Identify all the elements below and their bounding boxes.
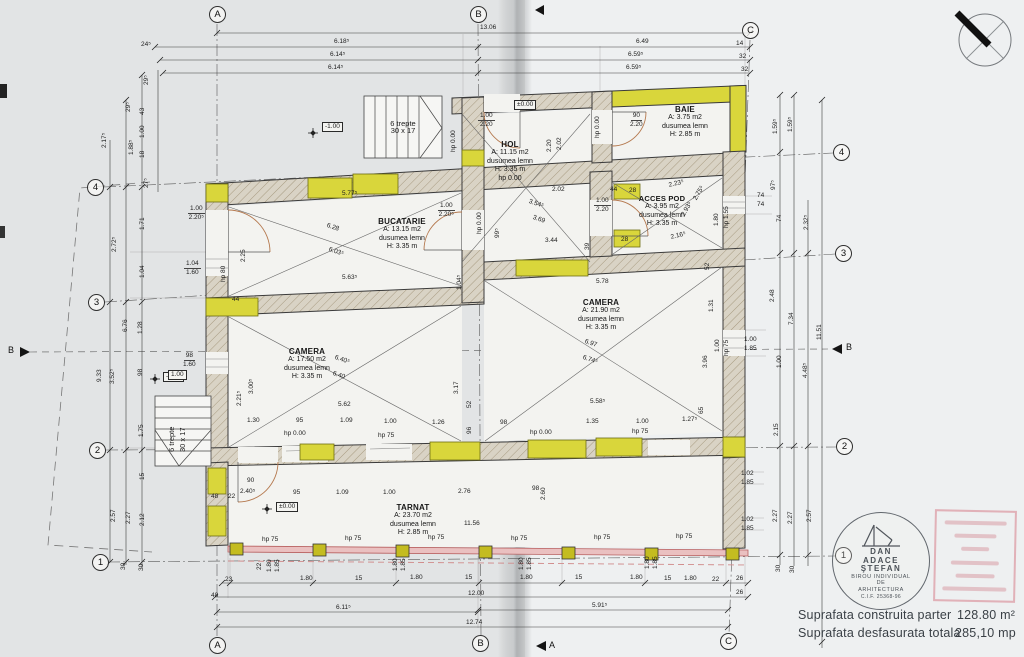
dim-label: 1.35 bbox=[586, 418, 599, 425]
dim-label: 1.00 bbox=[383, 489, 396, 496]
dim-label: 43 bbox=[139, 108, 146, 115]
dim-label: 3.44 bbox=[545, 237, 558, 244]
door-size-label: 1.002.20⁵ bbox=[438, 202, 455, 218]
dim-label: 90 bbox=[247, 477, 254, 484]
dim-label: 5.91⁵ bbox=[592, 602, 607, 609]
dim-label: 1.30 bbox=[247, 417, 260, 424]
dim-label: hp 75 bbox=[723, 340, 730, 356]
dim-label: 6.59⁵ bbox=[628, 51, 643, 58]
dim-label: 1.85 bbox=[741, 525, 754, 532]
dim-label: 15 bbox=[139, 473, 146, 480]
dim-label: 95 bbox=[296, 417, 303, 424]
dim-label: 6.11⁵ bbox=[336, 604, 351, 611]
dim-label: 1.00 bbox=[636, 418, 649, 425]
grid-bubble-4-right: 4 bbox=[833, 144, 850, 161]
room-label-camera-2: CAMERA A: 21.90 m2 dusumea lemn H: 3.35 … bbox=[556, 298, 646, 333]
dim-label: 1.28 bbox=[137, 321, 144, 334]
dim-label: 22 bbox=[228, 493, 235, 500]
dim-label: 15 bbox=[465, 574, 472, 581]
dim-label: 6.74⁵ bbox=[582, 354, 599, 366]
dim-label: 23 bbox=[225, 576, 232, 583]
dim-label: 30 bbox=[775, 565, 782, 572]
dim-label: hp 0.00 bbox=[450, 130, 457, 152]
dim-label: 1.80 bbox=[644, 556, 651, 569]
dim-label: 15 bbox=[355, 575, 362, 582]
dim-label: 1.31 bbox=[708, 299, 715, 312]
dim-label: hp 75 bbox=[511, 535, 527, 542]
dim-label: 1.80 bbox=[266, 559, 273, 572]
dim-label: 1.85 bbox=[526, 557, 533, 570]
dim-label: 48 bbox=[211, 493, 218, 500]
dim-label: 5.63⁵ bbox=[342, 274, 357, 281]
room-label-bucatarie: BUCATARIE A: 13.15 m2 dusumea lemn H: 3.… bbox=[352, 217, 452, 252]
dim-label: 29⁵ bbox=[125, 102, 132, 112]
dim-label: 48 bbox=[211, 592, 218, 599]
dim-label: 1.00 bbox=[384, 418, 397, 425]
dim-label: 1.88⁵ bbox=[128, 140, 135, 155]
dim-label: 11.56 bbox=[464, 520, 480, 527]
dim-label: 1.85 bbox=[741, 479, 754, 486]
dim-label: 6.49 bbox=[636, 38, 649, 45]
dim-label: 22 bbox=[256, 563, 263, 570]
dim-label: 99⁵ bbox=[494, 228, 501, 238]
dim-label: 98 bbox=[532, 485, 539, 492]
dim-label: hp 75 bbox=[345, 535, 361, 542]
dim-label: 97⁵ bbox=[770, 180, 777, 190]
dim-label: 24⁵ bbox=[141, 41, 151, 48]
dim-label: 1.00 bbox=[139, 125, 146, 138]
grid-bubble-b-bottom: B bbox=[472, 635, 489, 652]
dim-label: hp 75 bbox=[676, 533, 692, 540]
dim-label: 3.52⁵ bbox=[109, 369, 116, 384]
grid-bubble-a-top: A bbox=[209, 6, 226, 23]
stamp-org-line: ARHITECTURA bbox=[858, 587, 904, 594]
dim-label: hp 0.00 bbox=[284, 430, 306, 437]
dim-label: 26 bbox=[736, 589, 743, 596]
dim-label: 65 bbox=[698, 407, 705, 414]
dim-label: 6.03⁵ bbox=[328, 246, 345, 258]
dim-label: 2.57 bbox=[806, 509, 813, 522]
dim-label: 2.76 bbox=[458, 488, 471, 495]
dim-label: 3.17 bbox=[453, 381, 460, 394]
dim-label: 39 bbox=[584, 243, 591, 250]
dim-label: 2.20 bbox=[546, 139, 553, 152]
dim-label: 1.85 bbox=[652, 556, 659, 569]
dim-label: 18 bbox=[139, 151, 146, 158]
scanned-floor-plan-sheet: A B C A B C 4 3 2 1 4 3 2 1 B B A 13.06 … bbox=[0, 0, 1024, 657]
dim-label: 96 bbox=[466, 427, 473, 434]
grid-bubble-c-bottom: C bbox=[720, 633, 737, 650]
dim-label: 2.17⁵ bbox=[101, 133, 108, 148]
dim-label: hp 0.00 bbox=[476, 212, 483, 234]
dim-label: 44 bbox=[232, 296, 239, 303]
grid-bubble-2-left: 2 bbox=[89, 442, 106, 459]
level-marker: -1.00 bbox=[322, 122, 343, 132]
section-label-a-bottom: A bbox=[549, 640, 555, 650]
dim-label: 1.09 bbox=[340, 417, 353, 424]
dim-label: 74 bbox=[757, 192, 764, 199]
section-label-b-left: B bbox=[8, 345, 14, 355]
dim-label: 12.74 bbox=[466, 619, 482, 626]
dim-label: 1.04 bbox=[139, 265, 146, 278]
dim-label: 2.72⁵ bbox=[111, 237, 118, 252]
dim-label: hp 75 bbox=[428, 534, 444, 541]
dim-label: 2.48 bbox=[769, 289, 776, 302]
dim-label: 7.34 bbox=[788, 312, 795, 325]
dim-label: 6.18⁵ bbox=[334, 38, 349, 45]
dim-label: hp 75 bbox=[262, 536, 278, 543]
dim-label: 30 bbox=[789, 566, 796, 573]
door-size-label: 1.002.20 bbox=[478, 112, 495, 128]
dim-label: 5.58⁵ bbox=[590, 398, 605, 405]
dim-label: hp 1.55 bbox=[723, 206, 730, 228]
summary-total-area-value: 285,10 mp bbox=[955, 626, 1016, 640]
dim-label: 1.80 bbox=[300, 575, 313, 582]
window-size-label: 1.041.60 bbox=[184, 260, 201, 276]
dim-label: 2.27 bbox=[787, 511, 794, 524]
dim-label: hp 75 bbox=[594, 534, 610, 541]
dim-label: 6.59⁵ bbox=[626, 64, 641, 71]
grid-bubble-3-right: 3 bbox=[835, 245, 852, 262]
dim-label: 26 bbox=[736, 575, 743, 582]
dim-label: 2.02 bbox=[552, 186, 565, 193]
dim-label: 2.02 bbox=[556, 137, 563, 150]
dim-label: 28 bbox=[629, 187, 636, 194]
dim-label: 1.27⁵ bbox=[682, 416, 697, 423]
dim-label: 1.00 bbox=[744, 336, 757, 343]
grid-bubble-c-top: C bbox=[742, 22, 759, 39]
dim-label: 14 bbox=[736, 40, 743, 47]
dim-label: 2.12 bbox=[139, 513, 146, 526]
stairs-label: 6 trepte bbox=[168, 427, 175, 452]
stamp-cif-line: C.I.F. 25368-96 bbox=[861, 594, 901, 600]
grid-bubble-1-left: 1 bbox=[92, 554, 109, 571]
section-label-b-right: B bbox=[846, 342, 852, 352]
dim-label: 1.59⁵ bbox=[772, 119, 779, 134]
dim-label: 1.80 bbox=[630, 574, 643, 581]
dim-label: 1.26 bbox=[432, 419, 445, 426]
dim-label: 2.16⁵ bbox=[670, 231, 687, 241]
dim-label: 3.00⁵ bbox=[248, 379, 255, 394]
dim-label: 1.80 bbox=[518, 557, 525, 570]
dim-label: 1.80 bbox=[392, 558, 399, 571]
door-size-label: 902.20 bbox=[630, 112, 643, 128]
dim-label: 1.80 bbox=[520, 574, 533, 581]
dim-label: 2.57 bbox=[110, 509, 117, 522]
dim-label: 1.00 bbox=[168, 370, 187, 380]
dim-label: 4.48⁵ bbox=[802, 363, 809, 378]
dim-label: 1.75 bbox=[138, 424, 145, 437]
dim-label: 27⁵ bbox=[143, 178, 150, 188]
dim-label: 6.97 bbox=[584, 338, 598, 349]
dim-label: 1.85 bbox=[274, 559, 281, 572]
dim-label: 2.32⁵ bbox=[803, 215, 810, 230]
dim-label: 1.80 bbox=[684, 575, 697, 582]
dim-label: 1.80 bbox=[713, 213, 720, 226]
dim-label: 74 bbox=[757, 201, 764, 208]
drafting-table-icon bbox=[858, 522, 904, 548]
dim-label: 11.51 bbox=[816, 324, 823, 340]
dim-label: 1.85 bbox=[400, 558, 407, 571]
summary-built-area-label: Suprafata construita parter bbox=[798, 608, 951, 622]
room-label-tarnat: TARNAT A: 23.70 m2 dusumea lemn H: 2.85 … bbox=[368, 503, 458, 538]
room-label-hol: HOL A: 11.15 m2 dusumea lemn H: 3.35 m h… bbox=[470, 140, 550, 183]
dim-label: 32 bbox=[739, 53, 746, 60]
dim-label: 1.85 bbox=[744, 345, 757, 352]
architect-round-stamp: DAN ADACE ŞTEFAN BIROU INDIVIDUAL DE ARH… bbox=[832, 512, 930, 610]
dim-label: 95 bbox=[293, 489, 300, 496]
dim-label: 2.15 bbox=[773, 423, 780, 436]
summary-built-area-value: 128.80 m² bbox=[957, 608, 1015, 622]
window-size-label: 981.60 bbox=[183, 352, 196, 368]
room-label-acces-pod: ACCES POD A: 3.95 m2 dusumea lemn H: 3.3… bbox=[618, 194, 706, 229]
dim-label: 74 bbox=[776, 215, 783, 222]
dim-label: 1.02 bbox=[741, 470, 754, 477]
grid-bubble-4-left: 4 bbox=[87, 179, 104, 196]
dim-label: 3.96 bbox=[702, 355, 709, 368]
room-label-baie: BAIE A: 3.75 m2 dusumea lemn H: 2.85 m bbox=[640, 105, 730, 140]
dim-label: 1.59⁵ bbox=[787, 117, 794, 132]
dim-label: 5.62 bbox=[338, 401, 351, 408]
dim-label: 15 bbox=[664, 575, 671, 582]
dim-label: 6.14⁵ bbox=[330, 51, 345, 58]
grid-bubble-3-left: 3 bbox=[88, 294, 105, 311]
level-marker: ±0.00 bbox=[514, 100, 536, 110]
dim-label: 6.76 bbox=[122, 319, 129, 332]
dim-label: 29⁵ bbox=[143, 75, 150, 85]
dim-label: 52 bbox=[466, 401, 473, 408]
dim-label: 5.78 bbox=[596, 278, 609, 285]
dim-label: 1.04⁵ bbox=[456, 275, 463, 290]
summary-total-area-label: Suprafata desfasurata totala bbox=[798, 626, 961, 640]
dim-label: 28 bbox=[621, 236, 628, 243]
dim-label: hp 75 bbox=[632, 428, 648, 435]
dim-label: 1.09 bbox=[336, 489, 349, 496]
stairs-label: 6 trepte 30 x 17 bbox=[364, 120, 442, 134]
dim-label: 22 bbox=[712, 576, 719, 583]
dim-label: 2.40⁵ bbox=[240, 488, 255, 495]
grid-bubble-2-right: 2 bbox=[836, 438, 853, 455]
dim-label: 6.28 bbox=[326, 222, 340, 233]
dim-label: 2.27 bbox=[125, 511, 132, 524]
dim-label: 52 bbox=[704, 263, 711, 270]
dim-label: 1.00 bbox=[776, 355, 783, 368]
dim-label: 30 bbox=[138, 564, 145, 571]
dim-label: 44 bbox=[610, 186, 617, 193]
dim-label: 9.33 bbox=[96, 369, 103, 382]
dim-label: 1.00 bbox=[714, 339, 721, 352]
dim-label: 1.71 bbox=[139, 217, 146, 230]
dim-label: 30 bbox=[120, 563, 127, 570]
door-size-label: 1.002.20 bbox=[594, 197, 611, 213]
dim-label: 6.14⁵ bbox=[328, 64, 343, 71]
grid-bubble-a-bottom: A bbox=[209, 637, 226, 654]
dim-label: 1.80 bbox=[410, 574, 423, 581]
dim-label: 1.02 bbox=[741, 516, 754, 523]
dim-label: hp 80 bbox=[220, 266, 227, 282]
stamp-name-line: ŞTEFAN bbox=[861, 565, 902, 574]
dim-label: hp 0.00 bbox=[530, 429, 552, 436]
dim-label: 98 bbox=[137, 369, 144, 376]
dim-label: 2.27 bbox=[772, 509, 779, 522]
dim-label: 32 bbox=[741, 66, 748, 73]
door-size-label: 1.002.20⁵ bbox=[188, 205, 205, 221]
dim-label: hp 75 bbox=[378, 432, 394, 439]
level-marker: ±0.00 bbox=[276, 502, 298, 512]
dim-label: 13.06 bbox=[480, 24, 496, 31]
dim-label: 98 bbox=[500, 419, 507, 426]
dim-label: 15 bbox=[575, 574, 582, 581]
dim-label: 3.54⁵ bbox=[528, 198, 545, 210]
dim-label: 2.23⁵ bbox=[668, 179, 685, 189]
dim-label: 2.21⁵ bbox=[236, 391, 243, 406]
approval-stamp bbox=[933, 509, 1017, 603]
dim-label: 2.25 bbox=[240, 249, 247, 262]
stairs-label: 30 x 17 bbox=[179, 427, 186, 452]
dim-label: 2.60 bbox=[540, 487, 547, 500]
dim-label: 3.69 bbox=[532, 214, 546, 225]
dim-label: 12.00 bbox=[468, 590, 484, 597]
dim-label: 5.77⁵ bbox=[342, 190, 357, 197]
grid-bubble-b-top: B bbox=[470, 6, 487, 23]
dim-label: hp 0.00 bbox=[594, 116, 601, 138]
